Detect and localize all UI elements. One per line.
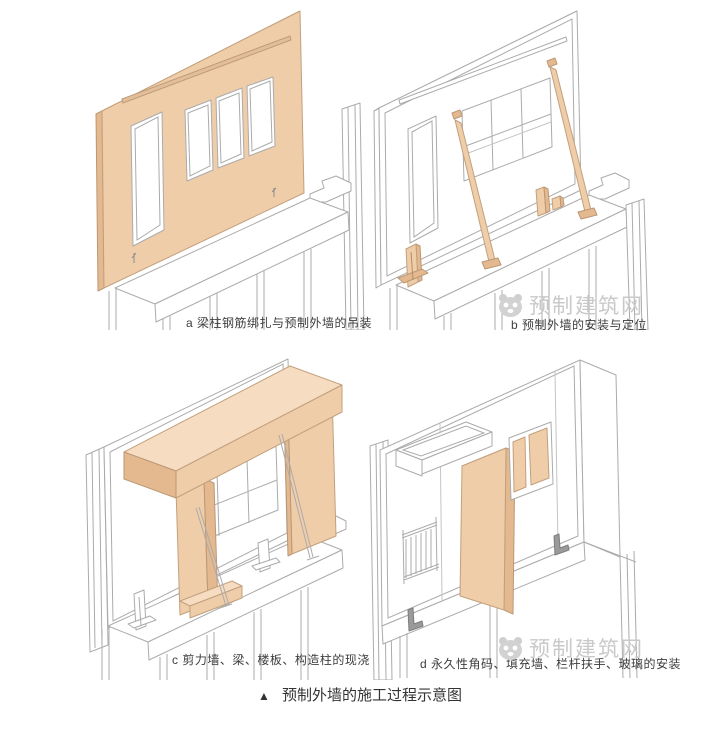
panel-a-caption: a 梁柱钢筋绑扎与预制外墙的吊装 xyxy=(186,314,372,331)
panel-b xyxy=(370,0,715,330)
triangle-marker-icon: ▲ xyxy=(258,689,270,703)
panel-d xyxy=(370,338,720,678)
infill-wall xyxy=(460,448,515,614)
panel-c xyxy=(80,340,400,680)
panel-c-illustration xyxy=(80,340,400,680)
figure-title-row: ▲预制外墙的施工过程示意图 xyxy=(0,684,720,705)
panel-a xyxy=(85,0,395,330)
panel-d-illustration xyxy=(370,338,720,678)
panel-b-illustration xyxy=(370,0,715,330)
figure-page: { "figure": { "panels": [ { "key": "a", … xyxy=(0,0,720,732)
panel-d-caption: d 永久性角码、填充墙、栏杆扶手、玻璃的安装 xyxy=(420,655,681,672)
panel-c-caption: c 剪力墙、梁、楼板、构造柱的现浇 xyxy=(172,651,370,668)
panel-b-caption: b 预制外墙的安装与定位 xyxy=(511,316,647,333)
panel-a-illustration xyxy=(85,0,395,330)
figure-title: 预制外墙的施工过程示意图 xyxy=(282,687,462,704)
